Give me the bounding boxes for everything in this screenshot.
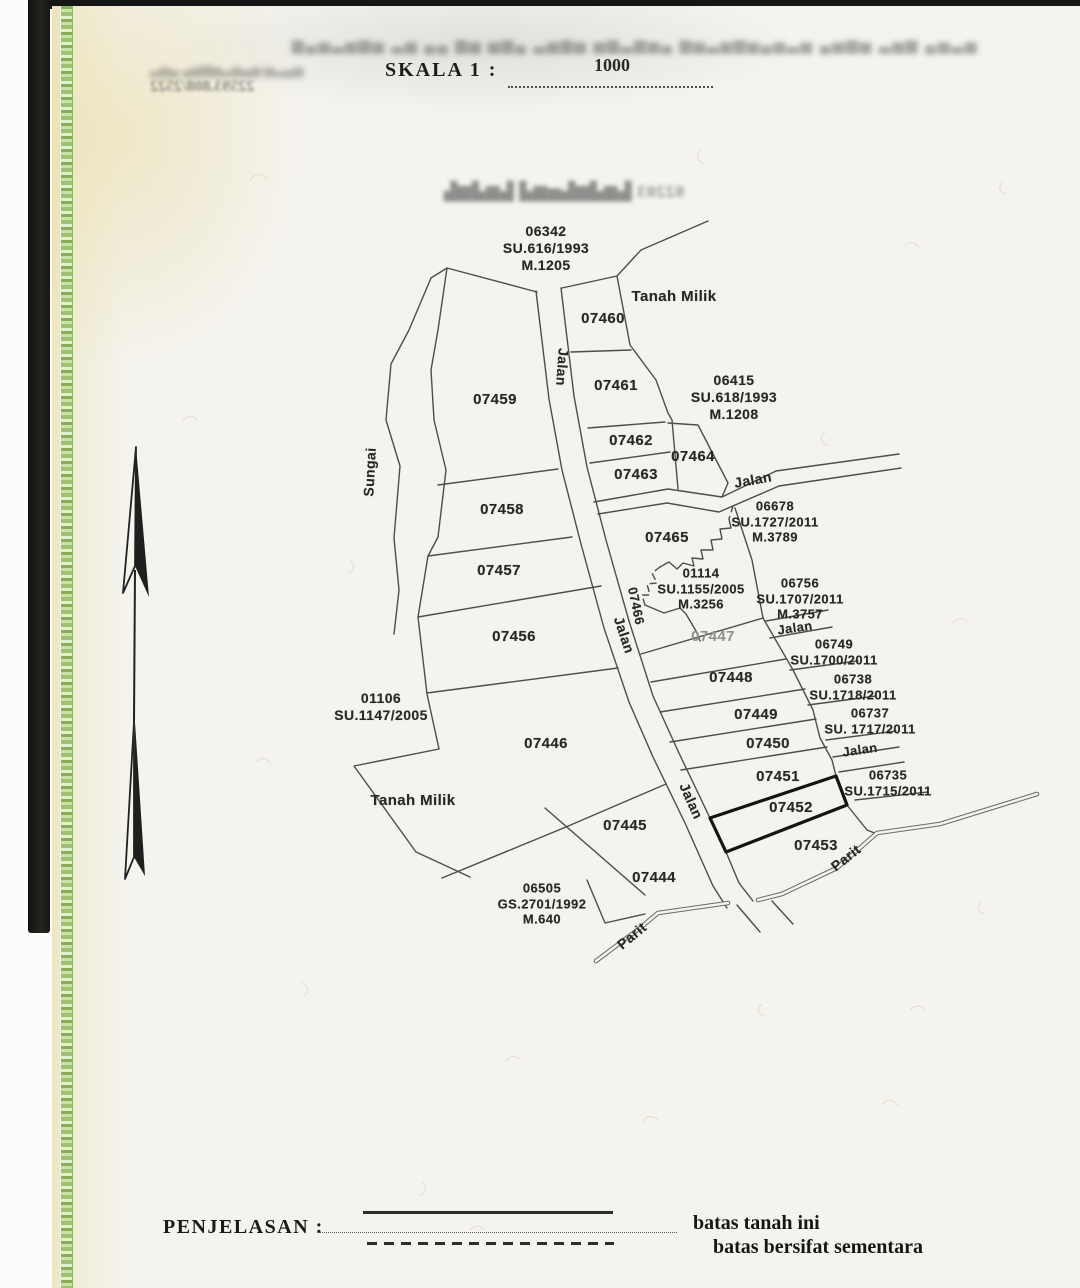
legend-label-batas-bersifat-sementara: batas bersifat sementara	[713, 1236, 923, 1259]
legend-title: PENJELASAN :	[163, 1216, 324, 1239]
map-label-tanah-milik: Tanah Milik	[632, 288, 717, 306]
map-label-07450: 07450	[746, 735, 790, 753]
scanned-survey-sheet: ▆▄▅▃▅▆▅ ▃▅ ▄▄ ▆▅ ▅▆▄ ▃▅▆▅ ▅▆▃▆▅▄ ▆▅▃▅▆▅▄…	[0, 0, 1080, 1288]
map-label-07462: 07462	[609, 432, 653, 450]
map-label-07453: 07453	[794, 837, 838, 855]
map-label-06756: 06756 SU.1707/2011 M.3757	[756, 576, 843, 623]
map-label-07456: 07456	[492, 628, 536, 646]
map-label-sungai: Sungai	[360, 447, 379, 497]
map-label-07452: 07452	[769, 799, 813, 817]
map-label-01114: 01114 SU.1155/2005 M.3256	[657, 566, 744, 613]
legend-label-batas-tanah-ini: batas tanah ini	[693, 1212, 820, 1235]
map-label-jalan: Jalan	[733, 468, 773, 491]
map-label-07446: 07446	[524, 735, 568, 753]
map-label-07457: 07457	[477, 562, 521, 580]
map-label-06342: 06342 SU.616/1993 M.1205	[503, 223, 589, 273]
map-label-06505: 06505 GS.2701/1992 M.640	[498, 881, 587, 928]
map-label-jalan: Jalan	[676, 780, 707, 821]
map-label-07464: 07464	[671, 448, 715, 466]
map-label-07447: 07447	[691, 628, 735, 646]
map-label-07461: 07461	[594, 377, 638, 395]
map-label-06735: 06735 SU.1715/2011	[844, 767, 931, 798]
map-label-07465: 07465	[645, 529, 689, 547]
map-label-07463: 07463	[614, 466, 658, 484]
map-label-07445: 07445	[603, 817, 647, 835]
map-label-jalan: Jalan	[841, 740, 878, 760]
map-labels: 06342 SU.616/1993 M.1205Tanah Milik07460…	[0, 0, 1080, 1288]
map-label-07459: 07459	[473, 391, 517, 409]
legend-solid-line-sample	[363, 1211, 613, 1214]
map-label-07451: 07451	[756, 768, 800, 786]
map-label-06738: 06738 SU.1718/2011	[809, 671, 896, 702]
map-label-07444: 07444	[632, 869, 676, 887]
map-label-07458: 07458	[480, 501, 524, 519]
legend-dotted-ruling	[317, 1218, 677, 1233]
map-label-07449: 07449	[734, 706, 778, 724]
map-label-01106: 01106 SU.1147/2005	[334, 690, 428, 724]
map-label-jalan: Jalan	[776, 618, 813, 638]
legend-dashed-line-sample	[367, 1242, 614, 1245]
map-label-06678: 06678 SU.1727/2011 M.3789	[731, 499, 818, 546]
map-label-parit: Parit	[614, 919, 650, 953]
map-label-07460: 07460	[581, 310, 625, 328]
map-label-tanah-milik: Tanah Milik	[371, 792, 456, 810]
map-label-06415: 06415 SU.618/1993 M.1208	[691, 372, 777, 422]
map-label-06749: 06749 SU.1700/2011	[790, 636, 877, 667]
map-label-jalan: Jalan	[552, 348, 571, 387]
map-label-06737: 06737 SU. 1717/2011	[824, 705, 915, 736]
map-label-07448: 07448	[709, 669, 753, 687]
